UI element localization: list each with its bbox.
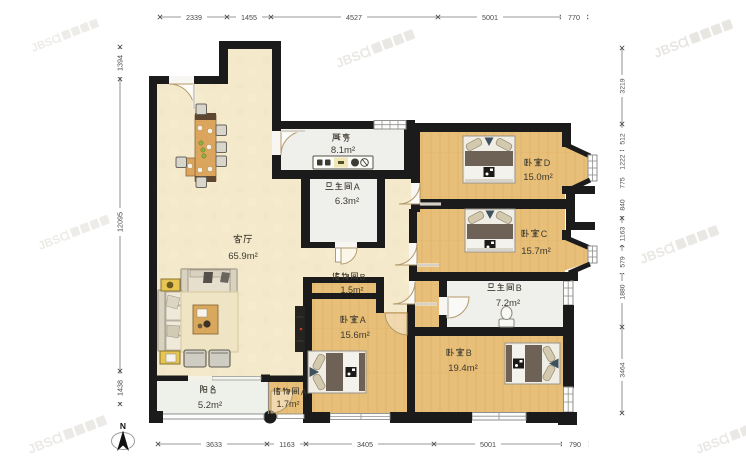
- svg-text:12095: 12095: [116, 212, 125, 232]
- svg-text:JBSC: JBSC: [36, 228, 71, 253]
- svg-text:1.7m²: 1.7m²: [276, 399, 299, 409]
- svg-text:A: A: [354, 182, 360, 192]
- svg-text:3633: 3633: [206, 440, 222, 449]
- svg-text:C: C: [541, 229, 548, 239]
- svg-text:1880: 1880: [620, 284, 627, 299]
- svg-text:A: A: [360, 315, 366, 325]
- svg-text:1163: 1163: [279, 440, 294, 449]
- svg-text:B: B: [516, 283, 522, 293]
- svg-text:579: 579: [620, 256, 627, 268]
- svg-text:3464: 3464: [620, 362, 627, 377]
- svg-text:4527: 4527: [346, 13, 362, 22]
- svg-text:1.5m²: 1.5m²: [340, 285, 363, 295]
- svg-text:770: 770: [568, 13, 580, 22]
- svg-text:775: 775: [620, 177, 627, 189]
- svg-text:5.2m²: 5.2m²: [198, 400, 222, 411]
- svg-text:19.4m²: 19.4m²: [448, 363, 478, 374]
- svg-text:7.2m²: 7.2m²: [496, 298, 520, 309]
- svg-text:3405: 3405: [357, 440, 373, 449]
- svg-text:JBSC: JBSC: [26, 430, 65, 457]
- svg-text:6.3m²: 6.3m²: [335, 196, 359, 207]
- svg-text:512: 512: [620, 133, 627, 145]
- svg-text:JBSC: JBSC: [30, 33, 62, 55]
- svg-text:15.0m²: 15.0m²: [523, 172, 553, 183]
- svg-text:JBSC: JBSC: [652, 34, 691, 61]
- svg-text:1222: 1222: [620, 154, 627, 169]
- svg-text:1163: 1163: [620, 226, 627, 241]
- svg-text:790: 790: [569, 440, 581, 449]
- svg-text:JBSC: JBSC: [694, 432, 730, 457]
- svg-text:B: B: [466, 348, 472, 358]
- svg-text:5001: 5001: [482, 13, 498, 22]
- svg-text:A: A: [301, 387, 307, 397]
- svg-text:1455: 1455: [241, 13, 257, 22]
- svg-text:N: N: [120, 421, 126, 431]
- svg-text:1438: 1438: [116, 380, 125, 396]
- svg-text:15.7m²: 15.7m²: [521, 246, 551, 257]
- svg-text:840: 840: [620, 199, 627, 211]
- svg-text:B: B: [360, 272, 366, 282]
- svg-text:8.1m²: 8.1m²: [331, 145, 355, 156]
- svg-text:5001: 5001: [480, 440, 496, 449]
- svg-text:D: D: [544, 158, 551, 168]
- svg-text:2339: 2339: [186, 13, 202, 22]
- svg-text:3219: 3219: [620, 78, 627, 93]
- svg-text:65.9m²: 65.9m²: [228, 251, 258, 262]
- svg-text:1394: 1394: [116, 55, 125, 71]
- svg-text:JBSC: JBSC: [638, 240, 677, 267]
- svg-text:JBSC: JBSC: [334, 44, 373, 71]
- svg-text:15.6m²: 15.6m²: [340, 330, 370, 341]
